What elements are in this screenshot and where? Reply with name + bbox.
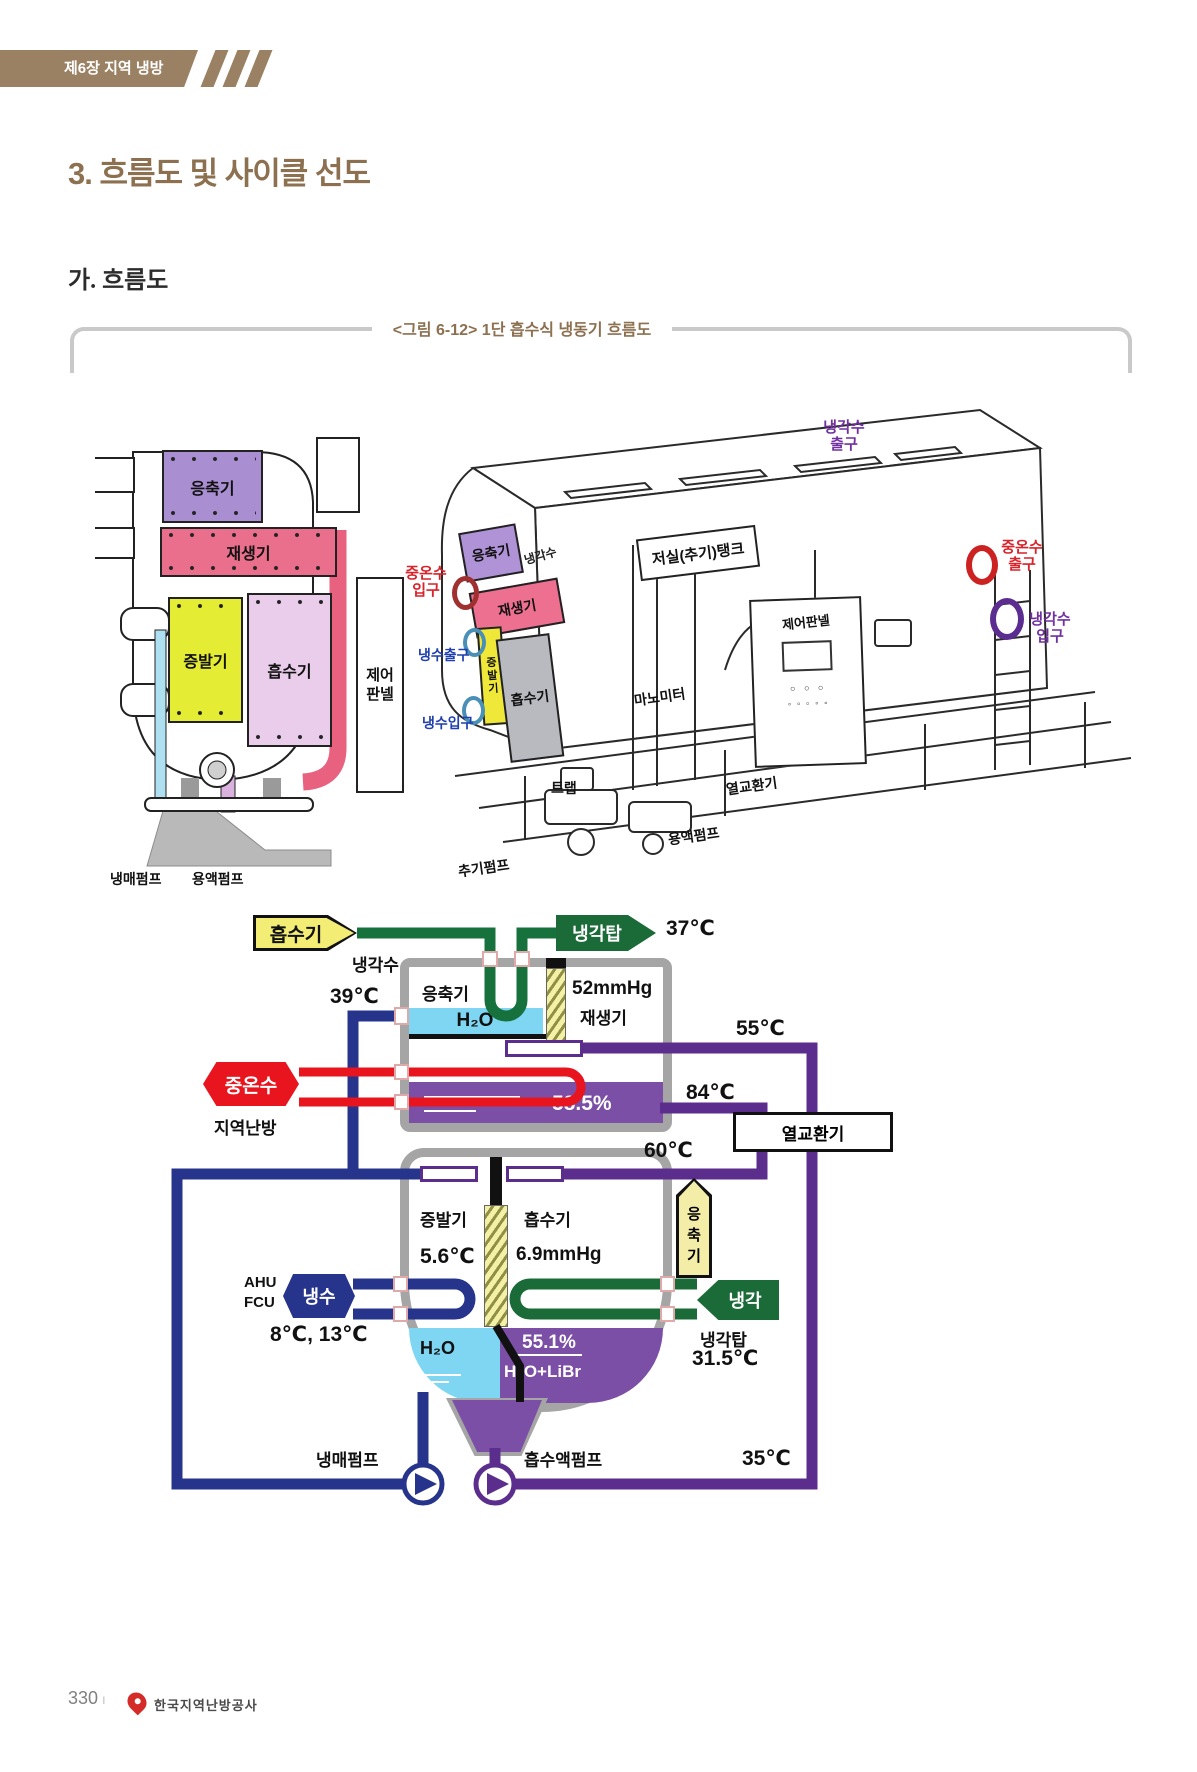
generator-spray-header [505,1040,583,1057]
right-view-hot-water-inlet-label: 중온수 입구 [400,566,452,599]
cooling-water-label: 냉각수 [352,951,399,976]
temp-60: 60℃ [644,1138,693,1163]
absorber-spray-header [506,1166,564,1182]
temp-55: 55℃ [736,1016,785,1041]
chilled-water-coil [353,1284,470,1314]
to-cooling-tower-arrow: 냉각탑 [556,915,656,951]
temp-39: 39℃ [330,984,379,1009]
figure-caption: <그림 6-12> 1단 흡수식 냉동기 흐름도 [372,316,672,340]
left-view-solution-pump-label: 용액펌프 [192,872,244,887]
temp-8-13: 8℃, 13℃ [270,1322,368,1347]
pool-divider [496,1326,520,1402]
right-view-trap-label: 트랩 [551,781,577,796]
refrigerant-pump-icon [404,1465,442,1503]
left-view-refrigerant-pump-label: 냉매펌프 [110,872,162,887]
chilled-water-arrow: 냉수 [283,1274,355,1318]
page-number: 330 ı [68,1688,106,1709]
fcu-label: FCU [244,1294,275,1311]
right-view-coolant-inlet-label: 냉각수 입구 [1022,612,1078,645]
absorbent-pump-label: 흡수액펌프 [524,1446,602,1471]
right-view-coolant-outlet-label: 냉각수 출구 [816,420,872,453]
hot-water-inlet-ring-icon [452,576,479,610]
to-condenser-arrow: 응축기 [676,1178,712,1278]
right-view-hot-water-outlet-label: 중온수 출구 [994,540,1050,573]
temp-35: 35℃ [742,1446,791,1471]
temp-84: 84℃ [686,1080,735,1105]
coolant-inlet-ring-icon [990,598,1024,640]
right-view-chilled-water-outlet-label: 냉수출구 [418,648,470,663]
cooling-inlet-arrow: 냉각 [697,1280,779,1320]
heat-exchanger-box: 열교환기 [733,1112,893,1152]
refrigerant-pump-label: 냉매펌프 [316,1446,379,1471]
from-absorber-arrow: 흡수기 [253,915,357,951]
temp-31-5: 31.5℃ [692,1346,758,1371]
district-heating-label: 지역난방 [214,1114,277,1139]
temp-37: 37℃ [666,916,715,941]
document-page: 제6장 지역 냉방 3. 흐름도 및 사이클 선도 가. 흐름도 <그림 6-1… [0,0,1197,1772]
evaporator-spray-header [420,1166,478,1182]
publisher-name: 한국지역난방공사 [154,1695,258,1714]
absorbent-pump-icon [476,1465,514,1503]
heat-exchanger-label: 열교환기 [782,1120,845,1145]
hot-water-arrow: 중온수 [203,1062,299,1106]
right-view-chilled-water-inlet-label: 냉수입구 [422,716,474,731]
pipe-layer [0,0,1197,1772]
ahu-label: AHU [244,1274,277,1291]
hot-water-coil [299,1072,581,1102]
